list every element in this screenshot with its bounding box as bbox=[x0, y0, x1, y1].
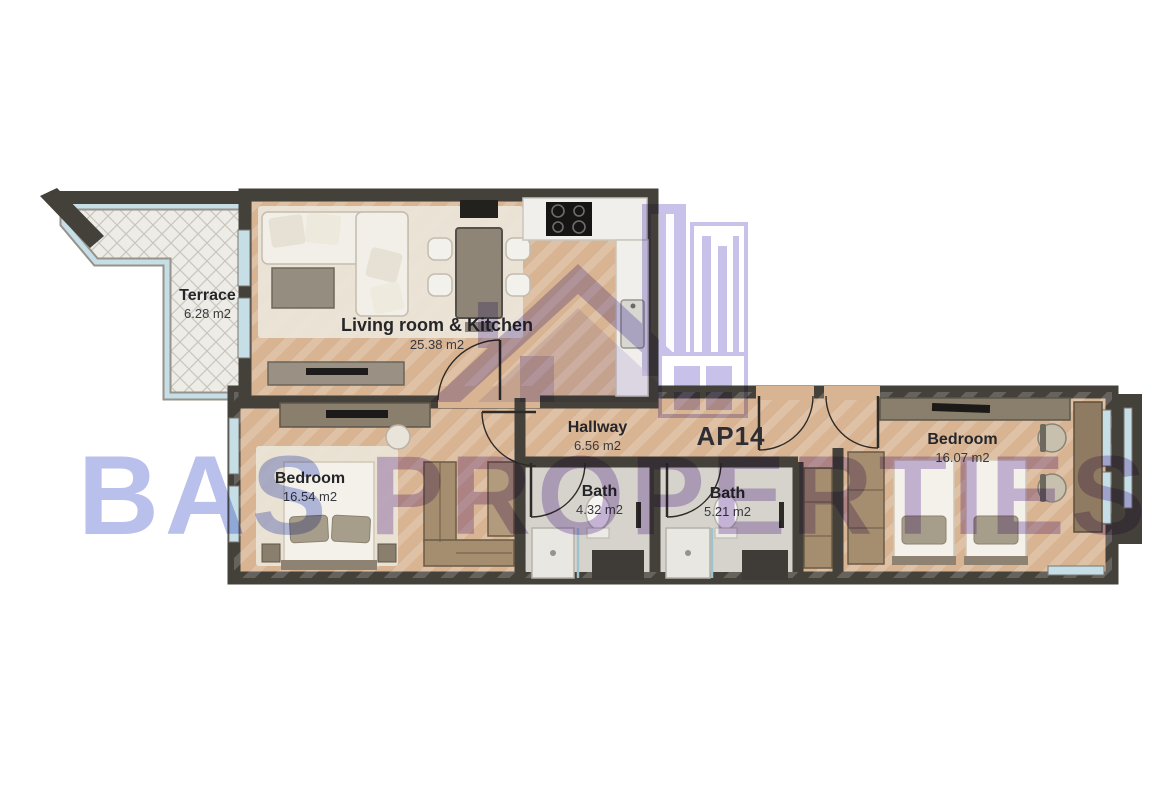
desk-chair bbox=[1038, 424, 1066, 452]
chair bbox=[428, 238, 452, 260]
headboard bbox=[892, 556, 956, 565]
pillow bbox=[331, 515, 370, 543]
window bbox=[238, 230, 250, 286]
chair bbox=[506, 274, 530, 296]
vanity bbox=[742, 550, 788, 580]
floor-plan-page: Terrace 6.28 m2 Living room & Kitchen 25… bbox=[0, 0, 1170, 785]
pillow bbox=[289, 515, 328, 543]
desk-chair bbox=[1038, 474, 1066, 502]
pillow bbox=[902, 516, 946, 544]
toilet bbox=[586, 495, 610, 538]
wardrobe bbox=[848, 452, 884, 564]
exterior-wall bbox=[50, 191, 250, 204]
coffee-table bbox=[272, 268, 334, 308]
headboard bbox=[281, 560, 377, 570]
window bbox=[229, 486, 239, 542]
nightstand bbox=[262, 544, 280, 562]
hall-closet bbox=[804, 468, 832, 568]
double-bed bbox=[281, 462, 377, 570]
sideboard bbox=[460, 200, 498, 218]
single-bed bbox=[892, 460, 956, 565]
window bbox=[238, 298, 250, 358]
tv-console bbox=[268, 362, 404, 385]
floor-plan bbox=[0, 0, 1170, 785]
pouf bbox=[386, 425, 410, 449]
chair bbox=[428, 274, 452, 296]
window bbox=[1048, 566, 1104, 575]
pillow bbox=[974, 516, 1018, 544]
towel-rail bbox=[779, 502, 784, 528]
bench bbox=[465, 322, 493, 332]
desk bbox=[1074, 402, 1102, 532]
shower-drain bbox=[685, 550, 691, 556]
faucet bbox=[631, 304, 636, 309]
tv bbox=[306, 368, 368, 375]
vanity bbox=[592, 550, 644, 580]
tv-console bbox=[280, 403, 430, 427]
chair bbox=[506, 238, 530, 260]
towel-rail bbox=[636, 502, 641, 528]
single-bed bbox=[964, 460, 1028, 565]
tv bbox=[326, 410, 388, 418]
window bbox=[229, 418, 239, 474]
nightstand bbox=[378, 544, 396, 562]
terrace-room bbox=[40, 188, 250, 396]
window bbox=[1124, 408, 1132, 508]
headboard bbox=[964, 556, 1028, 565]
shower-drain bbox=[550, 550, 556, 556]
toilet bbox=[714, 495, 738, 538]
tv-console bbox=[880, 398, 1070, 420]
